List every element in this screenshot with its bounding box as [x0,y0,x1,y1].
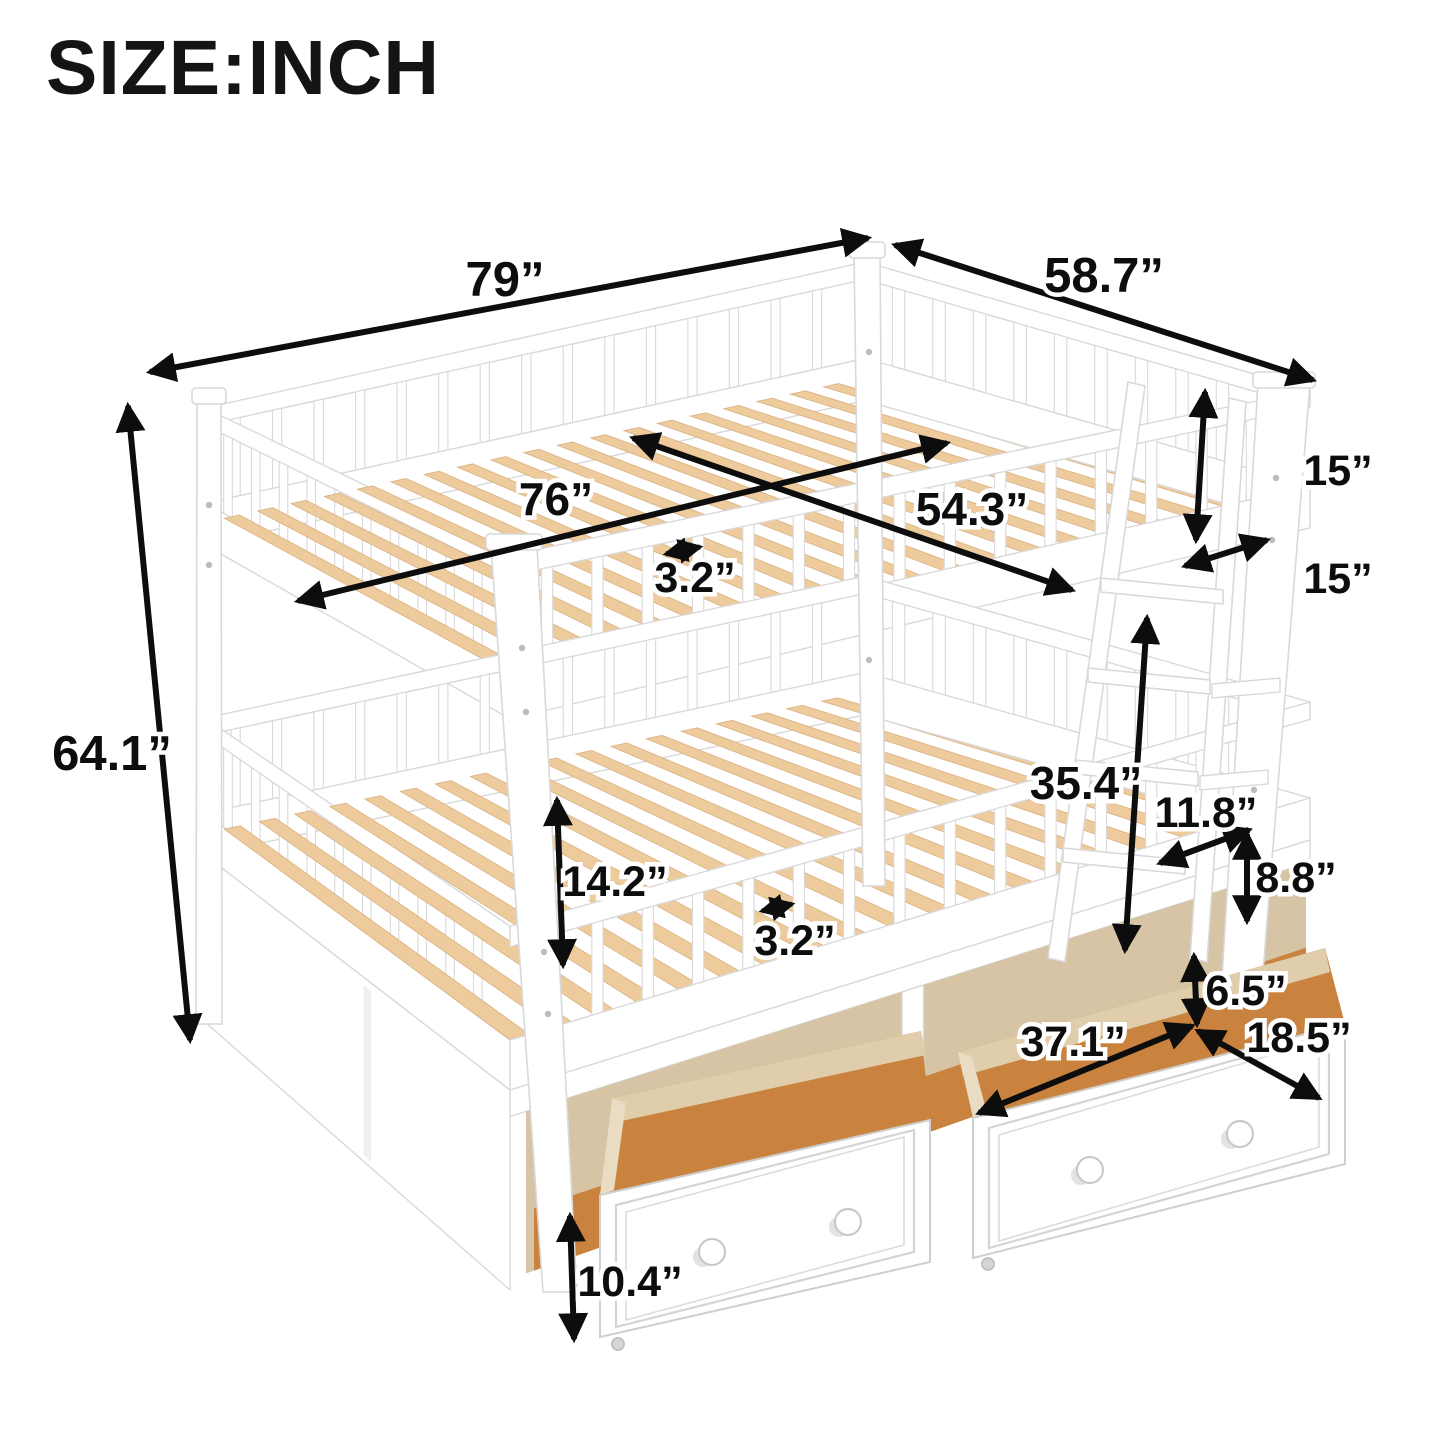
dim-label-overall-length: 79” [465,253,544,307]
bed-post-cap [849,242,885,258]
bed-part [1077,1157,1103,1183]
bed-post-cap [192,388,226,404]
size-diagram: SIZE:INCH 79” 58.7” 64.1” 76” [0,0,1445,1445]
dim-arrow-overall-height [128,406,190,1040]
bed-part [480,362,489,442]
bed-part [592,920,603,1015]
bed-part [279,462,288,548]
dim-label-drawer-top-gap: 6.5” [1205,967,1286,1015]
bed-part [973,311,986,394]
dim-label-top-rail-height: 15” [1303,447,1372,495]
bed-part [1176,369,1188,451]
bed-part [892,601,905,683]
bed-part [894,493,905,582]
dim-label-top-inner-width: 54.3” [916,483,1029,535]
bed-part [1269,537,1275,543]
bed-part [699,1239,725,1265]
bed-part [563,656,572,737]
bed-part [356,701,365,781]
bed-part [307,476,316,564]
bed-part [439,683,448,763]
bed-part [982,1258,994,1270]
bed-part [206,562,212,568]
bed-part [1014,322,1027,404]
dim-label-drawer-height: 10.4” [577,1258,682,1306]
bed-part [835,1209,861,1235]
bed-part [1014,636,1027,718]
dim-label-overall-width: 58.7” [1044,249,1164,303]
dim-label-drawer-depth: 18.5” [1246,1014,1351,1062]
bed-part [612,1338,624,1350]
bed-part [1101,578,1223,604]
bed-part [729,307,738,388]
bed-part [933,299,946,382]
bed-part [196,400,222,1024]
dim-label-bottom-slat-gap: 3.2” [754,917,835,965]
bed-part [973,624,986,706]
bed-part [480,674,489,754]
bed-part [519,645,525,651]
bed-part [224,434,233,518]
bed-part [605,335,614,416]
bed-part [356,390,365,470]
bed-part [1054,334,1067,416]
bed-part [813,289,822,370]
bed-part [743,877,754,969]
bed-part [1273,475,1279,481]
bed-part [1227,1121,1253,1147]
dim-label-rail-opening-width: 15” [1303,555,1372,603]
bed-part [642,906,653,1000]
dim-label-top-slat-gap: 3.2” [654,554,735,602]
bed-part [771,612,780,693]
bed-part [688,630,697,711]
bed-part [563,344,572,425]
dim-label-bunk-spacing: 35.4” [1030,757,1143,809]
bed-part [523,709,529,715]
bed-part [397,381,406,461]
dim-top-slat-gap: 3.2” [654,547,735,602]
bed-part [397,692,406,772]
bed-part [541,949,547,955]
bed-part [1045,461,1056,547]
bed-part [894,835,905,924]
bunk-bed-dimension-diagram: 79” 58.7” 64.1” 76” 54.3” 3.2” [0,0,1445,1445]
dim-label-ladder-step-length: 11.8” [1155,789,1258,837]
dim-label-top-slat-length: 76” [519,473,593,525]
bed-part [439,372,448,452]
bed-part [224,748,233,833]
bed-part [688,317,697,398]
dim-overall-height: 64.1” [52,406,190,1040]
dim-arrow-bottom-slat-gap [762,904,792,911]
bed-part [1146,440,1157,524]
dim-arrow-drawer-height [570,1216,574,1339]
bed-part [866,657,872,663]
bed-part [1095,450,1106,535]
dim-arrow-drawer-top-gap [1194,956,1197,1024]
bed-part [944,820,955,908]
bed-part [866,349,872,355]
bed-part [892,287,905,370]
bed-part [1095,346,1107,428]
bed-part [693,892,704,985]
bed-part [646,639,655,720]
bed-part [646,326,655,407]
dim-label-ladder-step-spacing: 8.8” [1255,854,1336,902]
bed-part [729,621,738,702]
dim-label-overall-height: 64.1” [52,727,172,781]
dim-label-drawer-length: 37.1” [1020,1018,1125,1066]
bed-part [605,647,614,728]
bed-part [314,710,323,790]
bed-part [844,849,855,939]
bed-part [813,603,822,684]
bed-part [252,448,261,533]
bed-part [364,985,372,1161]
bed-part [1054,647,1067,729]
bed-part [771,298,780,379]
bed-part [545,1011,551,1017]
bed-part [933,613,946,695]
bed-part [206,502,212,508]
dim-label-bottom-clearance: 14.2” [562,858,667,906]
bed-part [995,806,1006,894]
bed-part [522,353,531,434]
